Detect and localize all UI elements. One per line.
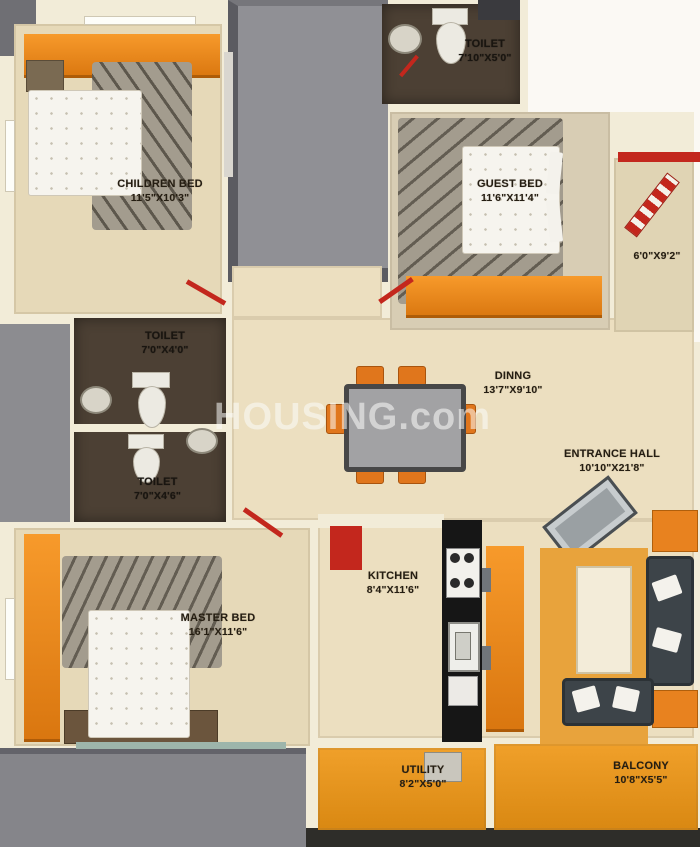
dining-label: DINNG 13'7"X9'10"	[458, 370, 568, 397]
kitchen-cabinet	[486, 546, 524, 732]
cabinet-handle-icon	[482, 646, 491, 670]
toilet-lower-dims: 7'0"X4'6"	[100, 490, 215, 503]
side-balcony-label: 6'0"X9'2"	[622, 250, 692, 263]
toilet-mid-label: TOILET 7'0"X4'0"	[110, 330, 220, 357]
guest-bed-name: GUEST BED	[475, 178, 545, 192]
side-balcony-floor	[614, 158, 694, 332]
kitchen-appliance-icon	[448, 676, 478, 706]
fridge-icon	[330, 526, 362, 570]
dining-table-icon	[344, 384, 466, 472]
bottom-shadow	[306, 828, 700, 847]
side-balcony-dims: 6'0"X9'2"	[622, 250, 692, 263]
toilet-lower-sink-icon	[186, 428, 218, 454]
stove-burner-icon	[450, 553, 460, 563]
coffee-table-icon	[576, 566, 632, 674]
balcony-floor	[494, 744, 698, 830]
toilet-top-dims: 7'10"X5'0"	[450, 52, 520, 65]
kitchen-label: KITCHEN 8'4"X11'6"	[348, 570, 438, 597]
toilet-lower-name: TOILET	[100, 476, 215, 490]
toilet-mid-dims: 7'0"X4'0"	[110, 344, 220, 357]
entrance-hall-label: ENTRANCE HALL 10'10"X21'8"	[534, 448, 690, 475]
sofa-cushion-icon	[612, 686, 640, 713]
toilet-top-label: TOILET 7'10"X5'0"	[450, 38, 520, 65]
entrance-hall-dims: 10'10"X21'8"	[534, 462, 690, 475]
guest-bed-label: GUEST BED 11'6"X11'4"	[475, 178, 545, 205]
kitchen-name: KITCHEN	[348, 570, 438, 584]
utility-dims: 8'2"X5'0"	[378, 778, 468, 791]
children-nightstand-icon	[26, 60, 64, 92]
dining-dims: 13'7"X9'10"	[458, 384, 568, 397]
bottom-left-void	[0, 748, 306, 847]
balcony-name: BALCONY	[586, 760, 696, 774]
balcony-label: BALCONY 10'8"X5'5"	[586, 760, 696, 787]
utility-label: UTILITY 8'2"X5'0"	[378, 764, 468, 791]
left-void	[0, 324, 70, 522]
window-strip	[84, 16, 196, 25]
utility-name: UTILITY	[378, 764, 468, 778]
dining-name: DINNG	[458, 370, 568, 384]
guest-wardrobe	[406, 276, 602, 318]
stair-void	[228, 0, 388, 282]
balcony-dims: 10'8"X5'5"	[586, 774, 696, 787]
toilet-top-sink-icon	[388, 24, 422, 54]
hall-side-unit	[652, 690, 698, 728]
stair-void-ledge	[224, 52, 233, 177]
window-strip	[5, 598, 15, 680]
children-bed-label: CHILDREN BED 11'5"X10'3"	[110, 178, 210, 205]
dining-chair-icon	[398, 366, 426, 386]
stove-burner-icon	[464, 553, 474, 563]
toilet-mid-name: TOILET	[110, 330, 220, 344]
dining-chair-icon	[326, 404, 346, 434]
exterior-white-top-right	[528, 0, 700, 112]
toilet-top-shower	[478, 0, 520, 20]
kitchen-sink-basin	[455, 632, 471, 660]
floor-plan: CHILDREN BED 11'5"X10'3" TOILET 7'10"X5'…	[0, 0, 700, 847]
side-balcony-wall	[618, 152, 700, 162]
exterior-white-right	[694, 112, 700, 342]
master-bed-name: MASTER BED	[158, 612, 278, 626]
window-strip	[5, 120, 15, 192]
master-window-sill	[76, 742, 286, 749]
children-bed-name: CHILDREN BED	[110, 178, 210, 192]
dining-chair-icon	[356, 366, 384, 386]
children-bed-dims: 11'5"X10'3"	[110, 192, 210, 205]
toilet-top-name: TOILET	[450, 38, 520, 52]
entrance-hall-name: ENTRANCE HALL	[534, 448, 690, 462]
master-bed-label: MASTER BED 16'1"X11'6"	[158, 612, 278, 639]
toilet-mid-sink-icon	[80, 386, 112, 414]
hall-side-unit	[652, 510, 698, 552]
corridor-floor	[232, 266, 382, 318]
master-wardrobe	[24, 534, 60, 742]
kitchen-dims: 8'4"X11'6"	[348, 584, 438, 597]
master-bed-dims: 16'1"X11'6"	[158, 626, 278, 639]
stove-burner-icon	[464, 578, 474, 588]
guest-bed-dims: 11'6"X11'4"	[475, 192, 545, 205]
toilet-lower-label: TOILET 7'0"X4'6"	[100, 476, 215, 503]
stove-burner-icon	[450, 578, 460, 588]
cabinet-handle-icon	[482, 568, 491, 592]
